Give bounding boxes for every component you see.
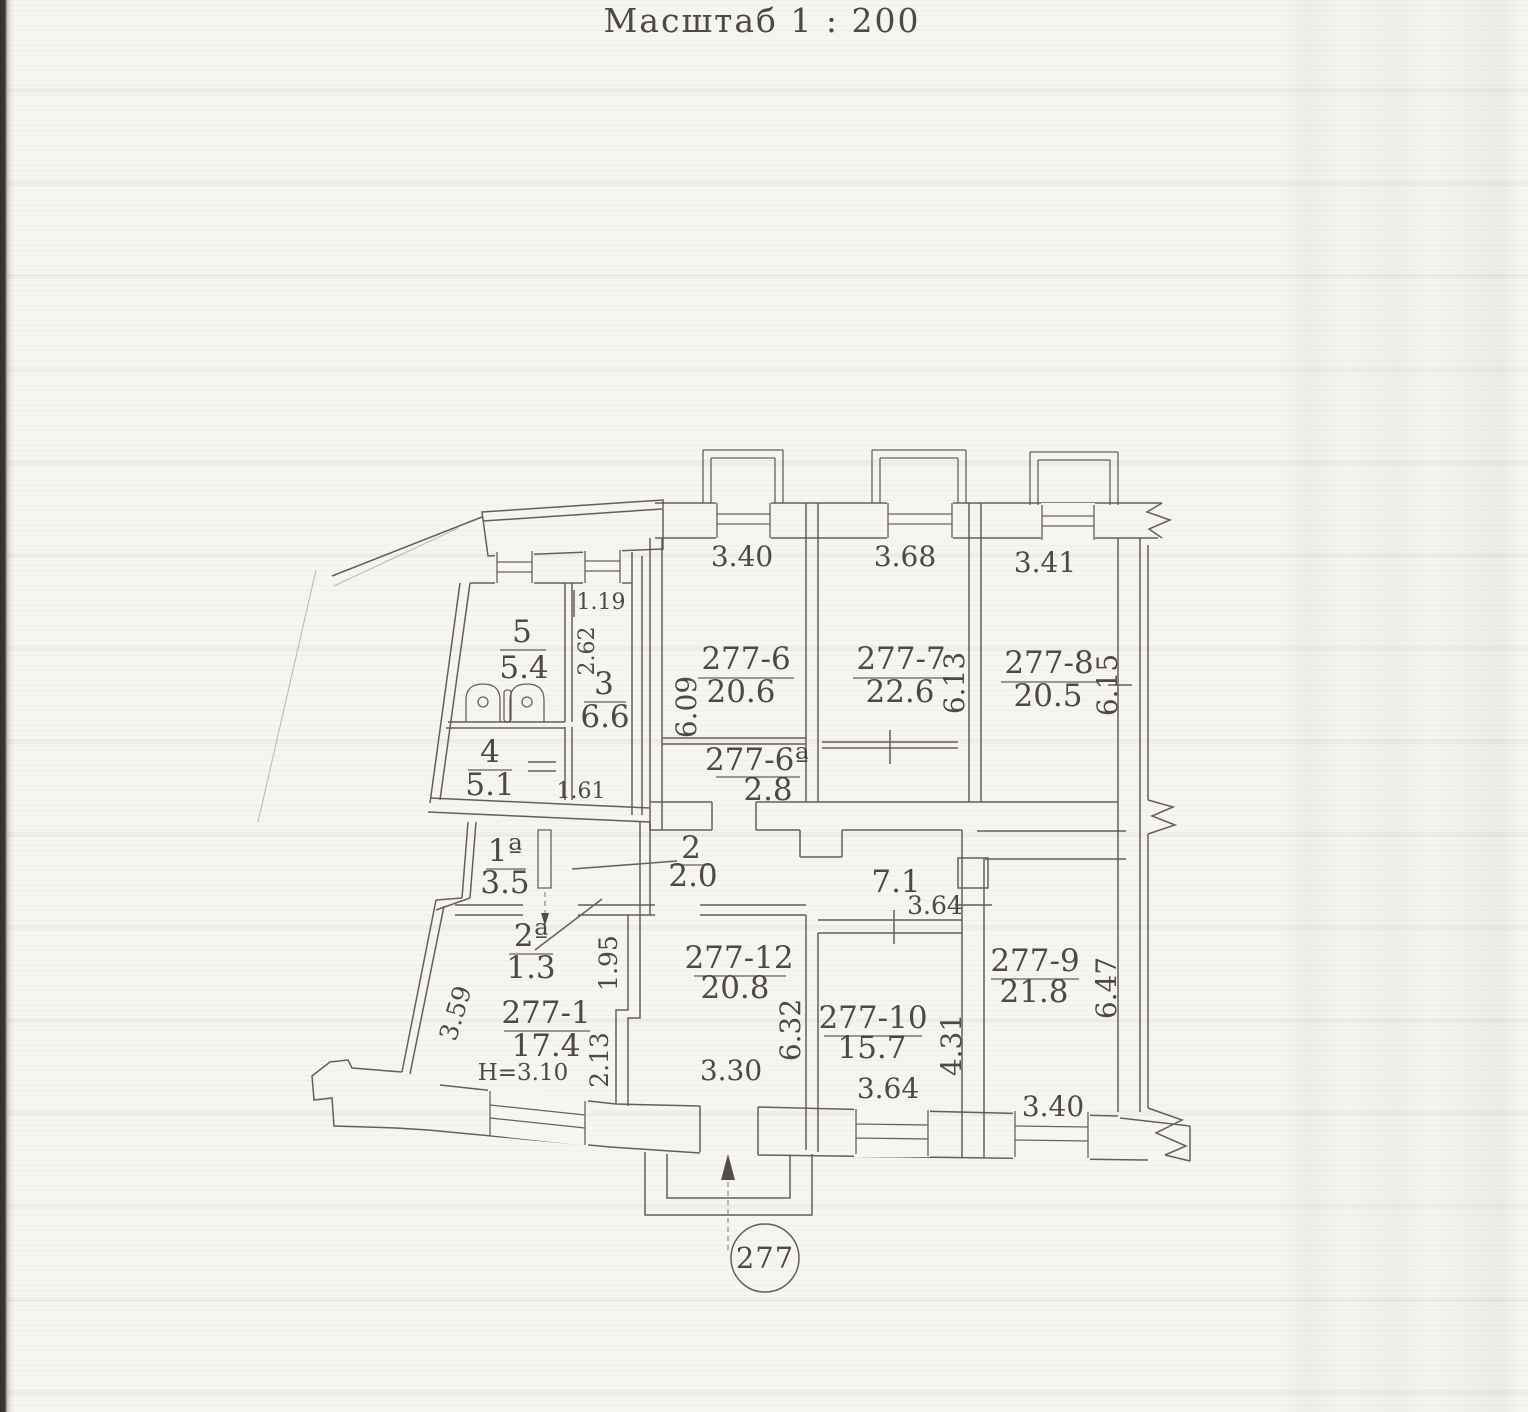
wall-neighbor-faint xyxy=(258,528,458,822)
room-area-277-9: 21.8 xyxy=(999,974,1068,1010)
window-clear-7 xyxy=(854,1107,930,1157)
room-number-1a: 1ª xyxy=(488,833,522,869)
dim-top-277-10: 3.64 xyxy=(907,891,963,920)
dim-side-277-10: 4.31 xyxy=(935,1014,968,1076)
bathroom-fixtures xyxy=(466,684,544,722)
toilet-drain-icon-1 xyxy=(478,697,488,707)
window-clear-5 xyxy=(583,549,622,584)
window-clear-4 xyxy=(495,550,534,584)
walls-right-outer-with-breaks xyxy=(1108,503,1190,1161)
room-area-277-1: 17.4 xyxy=(511,1028,580,1064)
toilet-icon-2 xyxy=(510,684,544,722)
room-area-5: 5.4 xyxy=(499,650,548,686)
scanned-floor-plan-page: 277 Масштаб 1 : 200 5 5.4 3 6.6 4 5.1 1ª… xyxy=(0,0,1528,1412)
room-area-277-6: 20.6 xyxy=(706,674,775,710)
dim-left-277-1: 3.59 xyxy=(433,982,477,1044)
doors xyxy=(538,830,551,926)
window-clear-2 xyxy=(887,501,953,539)
room-area-277-8: 20.5 xyxy=(1013,678,1082,714)
dim-room3-height: 2.62 xyxy=(575,627,600,676)
room-area-277-12: 20.8 xyxy=(700,970,769,1006)
room-area-277-10: 15.7 xyxy=(837,1030,906,1066)
dim-bottom-277-12: 3.30 xyxy=(700,1054,762,1087)
room-number-4: 4 xyxy=(480,734,500,770)
dim-right-277-12-lower: 2.13 xyxy=(585,1032,614,1088)
dim-side-277-12: 6.32 xyxy=(774,999,807,1061)
window-clear-3 xyxy=(1041,503,1095,541)
entrance: 277 xyxy=(645,1152,812,1292)
dim-right-277-7: 6.13 xyxy=(938,652,971,714)
room-area-4: 5.1 xyxy=(465,767,514,803)
door-leaf-room-1a xyxy=(538,830,551,888)
window-clear-1 xyxy=(716,501,771,539)
ceiling-height-note: Н=3.10 xyxy=(478,1060,569,1086)
toilet-icon-1 xyxy=(466,684,500,722)
dim-bottom-277-10: 3.64 xyxy=(857,1072,919,1105)
dim-right-277-12-upper: 1.95 xyxy=(594,935,623,991)
dim-bottom-277-9: 3.40 xyxy=(1022,1090,1084,1123)
room-area-2: 2.0 xyxy=(668,858,717,894)
room-area-3: 6.6 xyxy=(580,699,629,735)
room-number-5: 5 xyxy=(512,614,532,650)
room-number-277-7: 277-7 xyxy=(856,641,945,677)
room-area-277-7: 22.6 xyxy=(865,674,934,710)
room-area-2a: 1.3 xyxy=(506,950,555,986)
dim-top-277-8: 3.41 xyxy=(1014,546,1076,579)
room-number-2a: 2ª xyxy=(514,918,548,954)
room-area-277-6a: 2.8 xyxy=(743,772,792,808)
dim-room3-width: 1.19 xyxy=(577,590,626,615)
dim-side-277-9: 6.47 xyxy=(1090,957,1123,1019)
room-number-277-1: 277-1 xyxy=(501,995,590,1031)
dim-right-277-8: 6.15 xyxy=(1091,654,1124,716)
floor-plan-drawing: 277 Масштаб 1 : 200 5 5.4 3 6.6 4 5.1 1ª… xyxy=(0,0,1528,1412)
dim-top-277-6: 3.40 xyxy=(711,540,773,573)
dim-top-277-7: 3.68 xyxy=(874,540,936,573)
room-number-277-8: 277-8 xyxy=(1004,645,1093,681)
unit-stamp-number: 277 xyxy=(736,1241,794,1275)
dim-room3-bottom: 1.61 xyxy=(557,779,606,804)
toilet-drain-icon-2 xyxy=(522,697,532,707)
room-number-277-6: 277-6 xyxy=(701,641,790,677)
page-title: Масштаб 1 : 200 xyxy=(604,1,921,40)
bay-window-outlines xyxy=(703,450,1118,505)
room-area-1a: 3.5 xyxy=(480,865,529,901)
dim-left-277-6: 6.09 xyxy=(670,676,703,738)
entrance-arrow-icon xyxy=(721,1154,735,1180)
